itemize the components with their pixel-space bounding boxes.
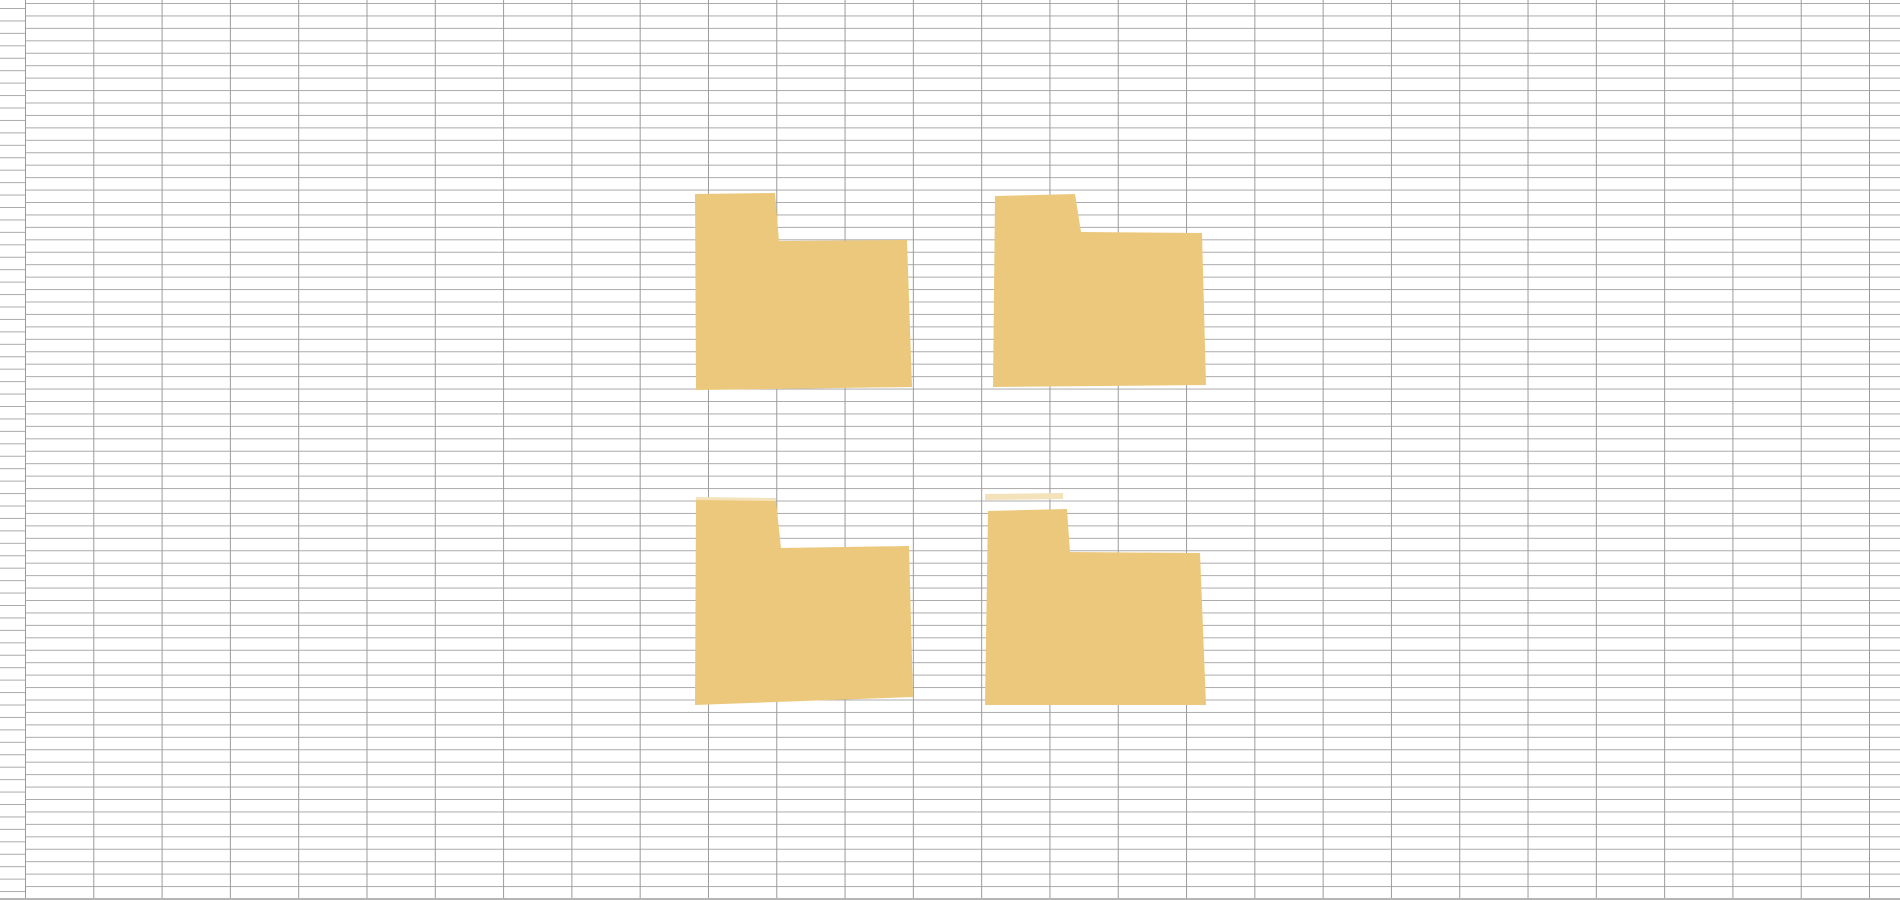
folder-bottom-right[interactable] [985,509,1206,705]
spreadsheet-canvas[interactable] [0,0,1900,900]
shapes-layer [0,0,1900,900]
folder-bottom-left[interactable] [695,500,913,705]
folder-top-right[interactable] [993,194,1206,387]
folder-top-left[interactable] [695,193,912,390]
faint-sliver-above-bottom-right-folder [985,493,1063,500]
